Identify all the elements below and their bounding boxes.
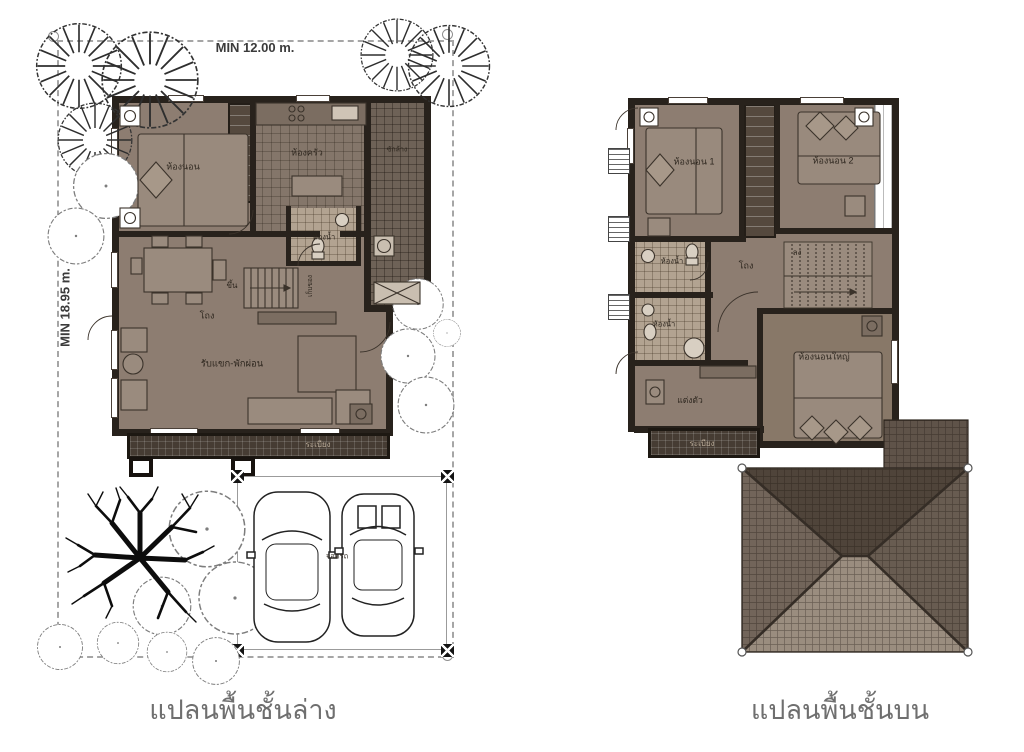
window: [111, 378, 118, 418]
label-upper-dressing: แต่งตัว: [677, 396, 702, 405]
wall: [424, 96, 431, 312]
window: [800, 97, 844, 104]
window: [111, 330, 118, 370]
wall: [757, 308, 899, 314]
label-ground-laundry: ซักล้าง: [387, 147, 408, 154]
label-ground-bathroom: ห้องน้ำ: [313, 233, 335, 241]
label-upper-bedroom2: ห้องนอน 2: [813, 157, 854, 166]
label-upper-bathroom1: ห้องน้ำ: [661, 257, 683, 265]
label-ground-kitchen: ห้องครัว: [291, 149, 323, 158]
carport-corner-marker: [231, 644, 244, 657]
wall: [758, 441, 899, 448]
wall: [775, 102, 780, 234]
label-ground-stairs-up: ขึ้น: [227, 282, 238, 290]
upper-master-area: [757, 312, 895, 443]
wall: [340, 231, 370, 237]
terrace-step: [129, 457, 153, 477]
wall: [386, 308, 393, 436]
plot-depth-dimension: MIN 18.95 m.: [58, 263, 73, 353]
plot-width-dimension: MIN 12.00 m.: [216, 40, 295, 55]
wall: [628, 360, 748, 366]
plot-corner-marker: [48, 31, 59, 42]
ground-floor-caption: แปลนพื้นชั้นล่าง: [149, 688, 336, 731]
window: [296, 95, 330, 102]
wall: [286, 261, 361, 266]
label-upper-hall: โถง: [739, 262, 754, 271]
carport-corner-marker: [441, 470, 454, 483]
wall: [250, 100, 256, 236]
ground-terrace-deck: [127, 433, 390, 459]
hip-roof: [738, 420, 972, 656]
wall: [112, 231, 256, 237]
window: [111, 186, 118, 216]
ground-bedroom-wardrobe: [228, 103, 252, 203]
window: [891, 340, 898, 384]
carport-corner-marker: [231, 470, 244, 483]
label-upper-balcony: ระเบียง: [690, 440, 715, 448]
plot-corner-marker: [48, 650, 59, 661]
upper-bathroom2-floor: [628, 298, 708, 362]
upper-wardrobe: [744, 104, 776, 238]
wall: [364, 96, 371, 312]
carport-corner-marker: [441, 644, 454, 657]
wall: [892, 98, 899, 448]
ac-unit: [608, 294, 630, 320]
label-ground-storage: เก็บของ: [308, 275, 315, 297]
window: [111, 128, 118, 162]
label-ground-hall: โถง: [200, 312, 215, 321]
label-ground-living: รับแขก-พักผ่อน: [201, 359, 263, 369]
wall: [364, 305, 431, 312]
wall: [705, 236, 711, 366]
wall: [250, 231, 320, 237]
wall: [775, 228, 899, 234]
label-upper-master-bedroom: ห้องนอนใหญ่: [798, 353, 849, 362]
label-ground-terrace: ระเบียง: [306, 441, 331, 449]
ac-unit: [608, 216, 630, 242]
upper-floor-caption: แปลนพื้นชั้นบน: [751, 688, 929, 731]
wall: [739, 102, 744, 242]
wall: [286, 206, 291, 266]
wall: [757, 308, 763, 443]
ac-unit: [608, 148, 630, 174]
wall: [628, 236, 746, 242]
window: [168, 95, 204, 102]
wall: [356, 206, 361, 266]
plot-corner-marker: [442, 29, 453, 40]
label-upper-bedroom1: ห้องนอน 1: [674, 158, 715, 167]
wall: [112, 96, 431, 103]
ground-laundry-floor: [368, 99, 426, 309]
window: [111, 252, 118, 288]
label-upper-bathroom2: ห้องน้ำ: [653, 320, 675, 328]
label-ground-carport: จอดรถ: [326, 552, 348, 560]
carport-slab: [237, 476, 447, 650]
label-upper-stairs-down: ลง: [793, 249, 802, 257]
label-ground-bedroom: ห้องนอน: [166, 163, 199, 172]
wall: [628, 292, 713, 298]
upper-bathroom1-floor: [628, 240, 708, 296]
floor-plan-sheet: MIN 12.00 m. MIN 18.95 m.: [0, 0, 1024, 752]
window: [668, 97, 708, 104]
